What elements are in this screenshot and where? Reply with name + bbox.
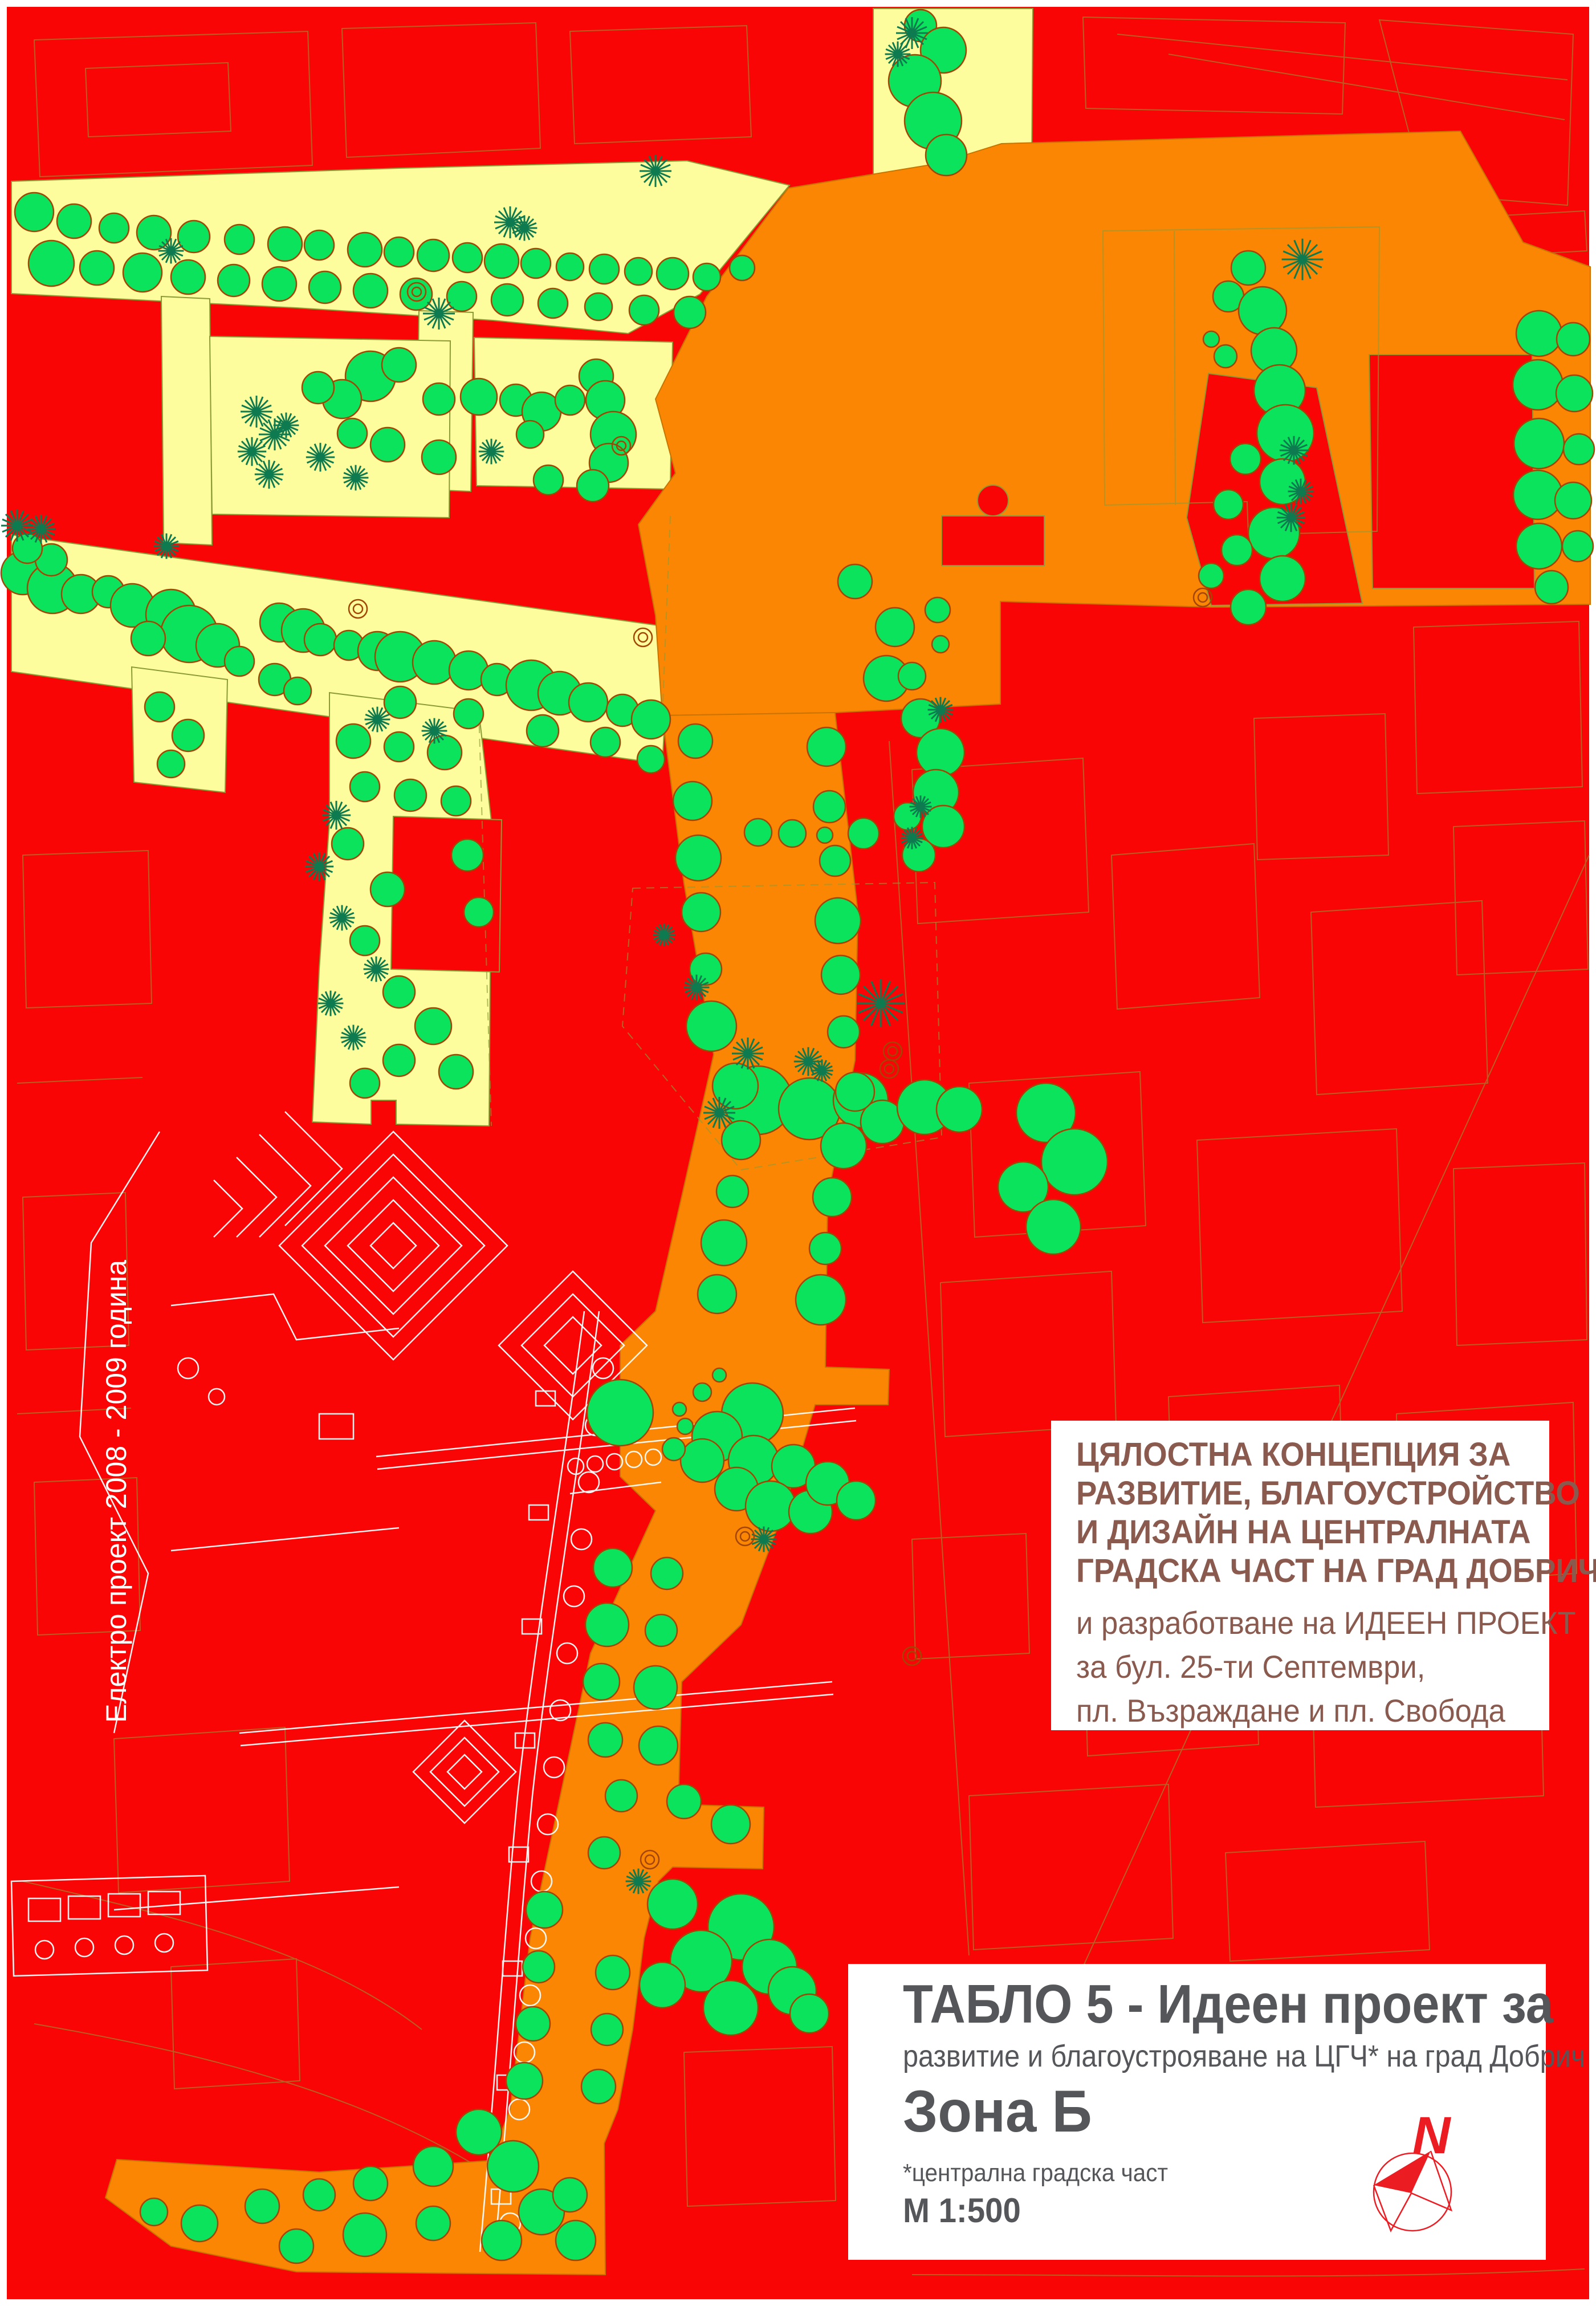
concept-regular-line: за бул. 25-ти Септември, xyxy=(1076,1645,1505,1689)
board-title: ТАБЛО 5 - Идеен проект за xyxy=(903,1973,1481,2036)
board-subtitle: развитие и благоустрояване на ЦГЧ* на гр… xyxy=(903,2036,1481,2077)
title-box: ТАБЛО 5 - Идеен проект за развитие и бла… xyxy=(848,1964,1546,2260)
concept-bold-line: ГРАДСКА ЧАСТ НА ГРАД ДОБРИЧ xyxy=(1076,1552,1505,1591)
concept-bold-line: И ДИЗАЙН НА ЦЕНТРАЛНАТА xyxy=(1076,1513,1505,1552)
concept-bold-line: ЦЯЛОСТНА КОНЦЕПЦИЯ ЗА xyxy=(1076,1435,1505,1474)
concept-regular-line: пл. Възраждане и пл. Свобода xyxy=(1076,1689,1505,1732)
concept-bold-line: РАЗВИТИЕ, БЛАГОУСТРОЙСТВО xyxy=(1076,1474,1505,1513)
compass-north-icon: N xyxy=(1344,2078,1492,2249)
urban-plan-poster: Електро проект 2008 - 2009 година ЦЯЛОСТ… xyxy=(0,0,1596,2306)
city-map xyxy=(0,0,1596,2306)
side-caption: Електро проект 2008 - 2009 година xyxy=(98,1153,138,1723)
concept-text-box: ЦЯЛОСТНА КОНЦЕПЦИЯ ЗА РАЗВИТИЕ, БЛАГОУСТ… xyxy=(1051,1421,1549,1730)
concept-regular-line: и разработване на ИДЕЕН ПРОЕКТ xyxy=(1076,1601,1505,1645)
